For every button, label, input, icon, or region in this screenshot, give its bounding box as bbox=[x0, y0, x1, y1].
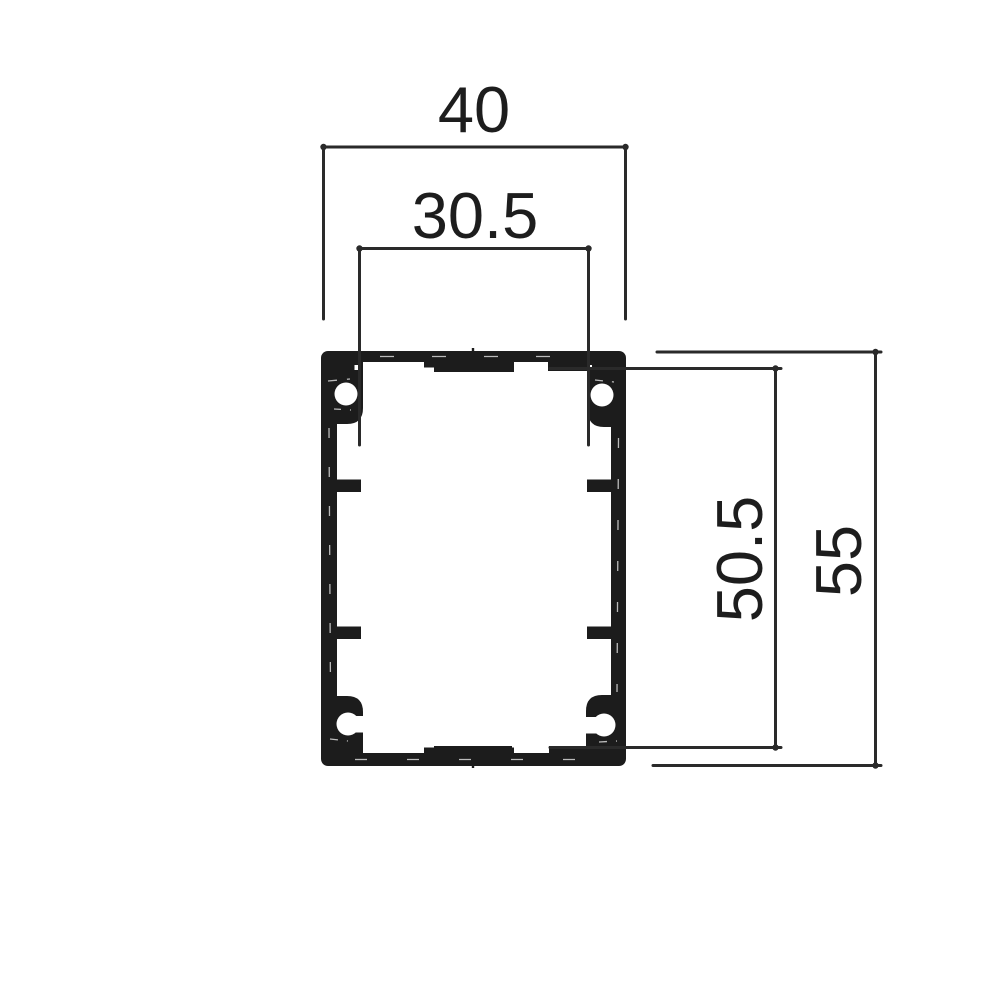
svg-text:50.5: 50.5 bbox=[703, 496, 776, 623]
svg-text:30.5: 30.5 bbox=[412, 179, 539, 252]
svg-text:40: 40 bbox=[438, 73, 510, 146]
svg-text:55: 55 bbox=[802, 525, 875, 597]
